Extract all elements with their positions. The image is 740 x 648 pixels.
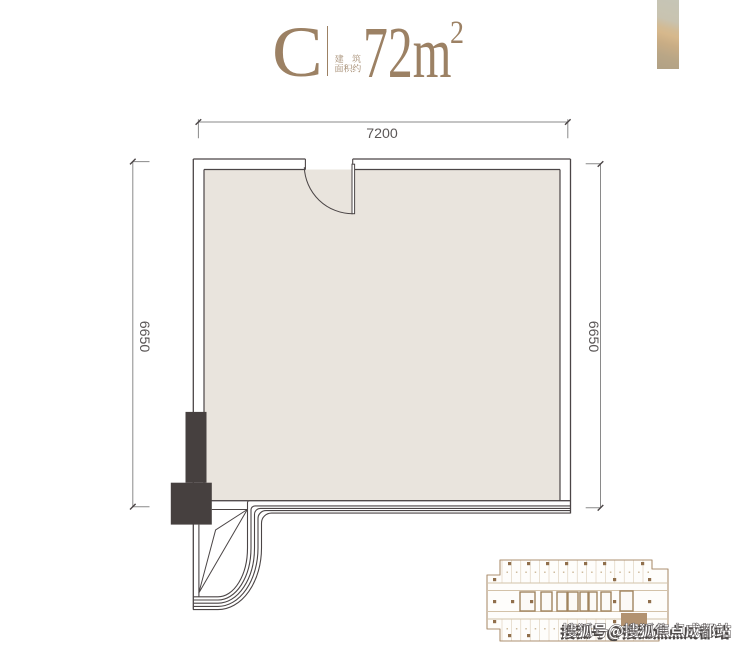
svg-text:6650: 6650 [136,321,152,353]
svg-text:6650: 6650 [585,321,601,353]
svg-text:7200: 7200 [366,126,398,142]
